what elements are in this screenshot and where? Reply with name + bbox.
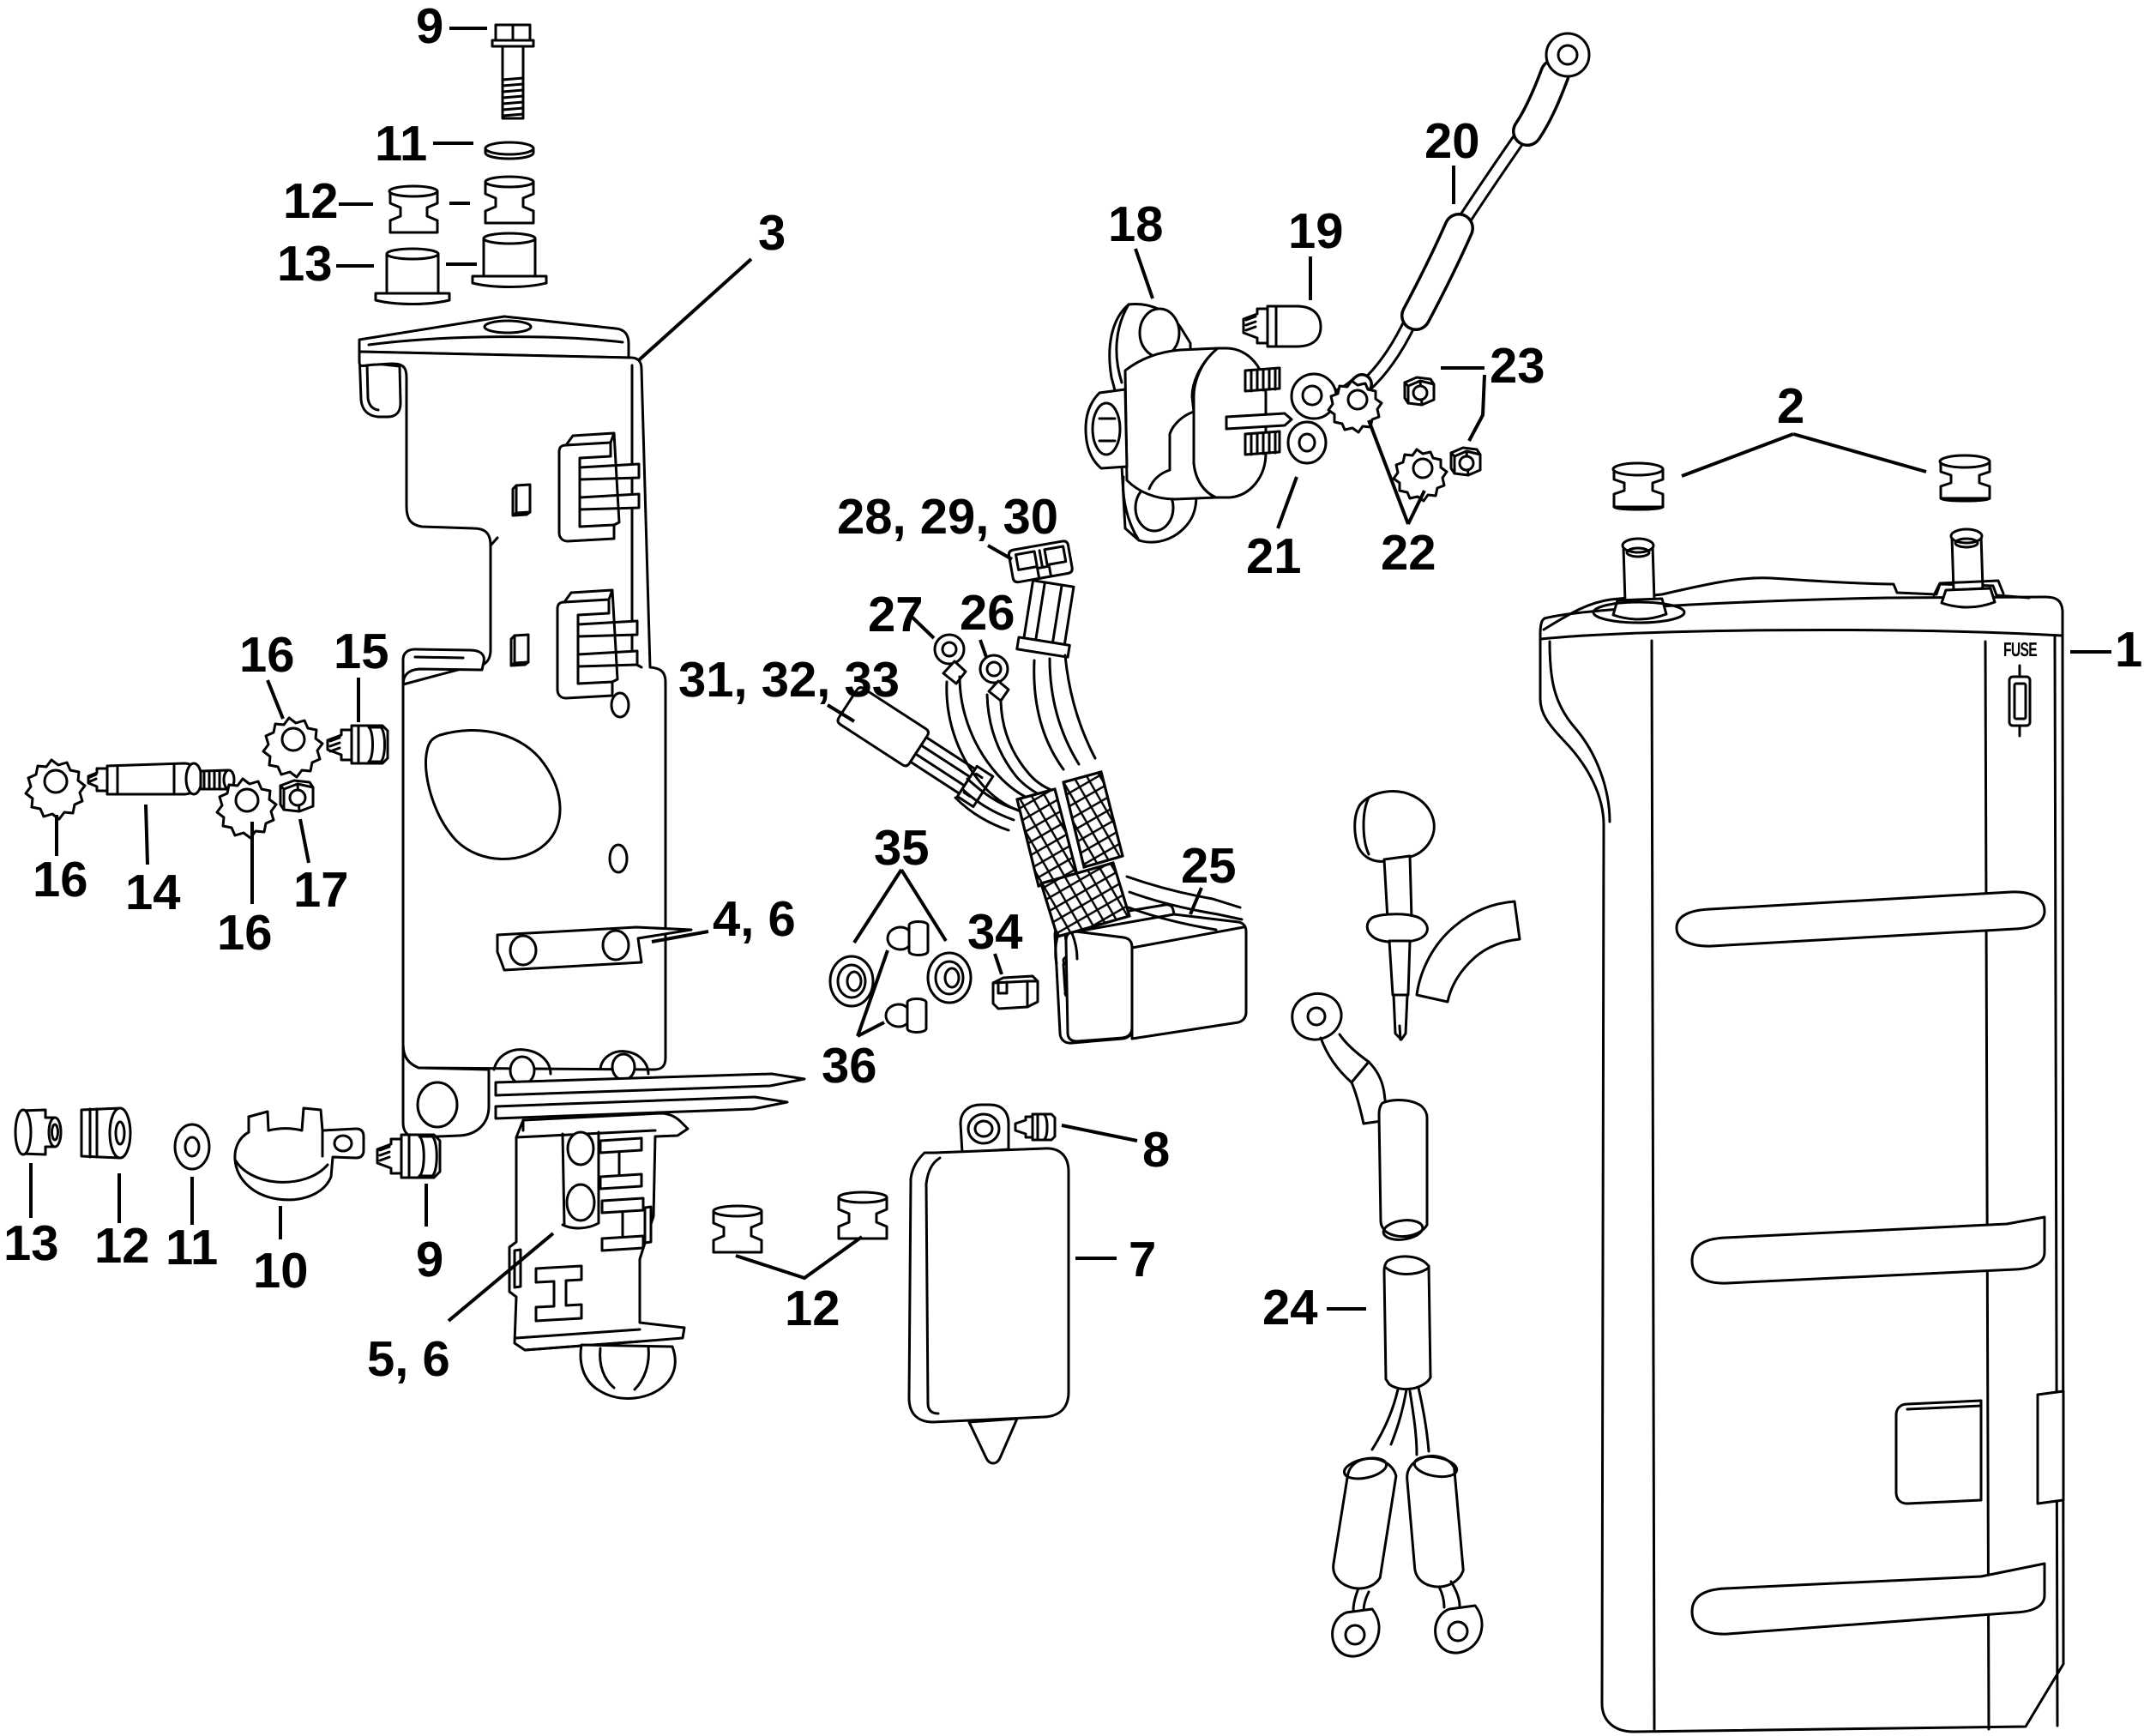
svg-text:11: 11 xyxy=(166,1220,218,1275)
svg-text:2: 2 xyxy=(1777,378,1804,434)
svg-text:25: 25 xyxy=(1181,838,1237,894)
svg-text:35: 35 xyxy=(874,820,930,876)
svg-text:31, 32, 33: 31, 32, 33 xyxy=(678,652,900,708)
svg-text:7: 7 xyxy=(1129,1232,1156,1287)
svg-text:8: 8 xyxy=(1142,1122,1170,1178)
svg-text:18: 18 xyxy=(1108,196,1164,252)
svg-text:28, 29, 30: 28, 29, 30 xyxy=(837,489,1058,545)
svg-text:16: 16 xyxy=(217,905,273,961)
svg-text:22: 22 xyxy=(1381,525,1436,581)
svg-text:12: 12 xyxy=(94,1218,150,1274)
svg-text:12: 12 xyxy=(785,1281,840,1336)
svg-text:9: 9 xyxy=(416,1232,443,1287)
svg-text:27: 27 xyxy=(868,587,924,642)
svg-text:4, 6: 4, 6 xyxy=(713,891,796,947)
svg-text:19: 19 xyxy=(1288,203,1344,259)
svg-text:FUSE: FUSE xyxy=(2003,638,2037,660)
svg-text:16: 16 xyxy=(33,852,88,907)
svg-text:36: 36 xyxy=(822,1038,877,1094)
svg-text:13: 13 xyxy=(277,236,333,292)
svg-text:15: 15 xyxy=(334,624,389,679)
svg-text:16: 16 xyxy=(239,627,295,683)
svg-text:23: 23 xyxy=(1490,338,1545,394)
svg-text:34: 34 xyxy=(967,904,1023,960)
svg-text:1: 1 xyxy=(2115,622,2142,678)
svg-text:20: 20 xyxy=(1424,113,1480,169)
svg-text:11: 11 xyxy=(375,116,427,172)
svg-text:21: 21 xyxy=(1246,528,1302,584)
svg-text:12: 12 xyxy=(283,173,339,229)
svg-text:14: 14 xyxy=(125,865,181,920)
svg-text:3: 3 xyxy=(758,205,786,261)
svg-text:5, 6: 5, 6 xyxy=(367,1331,450,1387)
svg-text:9: 9 xyxy=(416,0,443,54)
svg-text:10: 10 xyxy=(253,1243,309,1299)
svg-text:24: 24 xyxy=(1262,1280,1318,1335)
svg-text:26: 26 xyxy=(960,585,1015,641)
svg-text:13: 13 xyxy=(3,1215,59,1271)
svg-text:17: 17 xyxy=(293,862,349,918)
